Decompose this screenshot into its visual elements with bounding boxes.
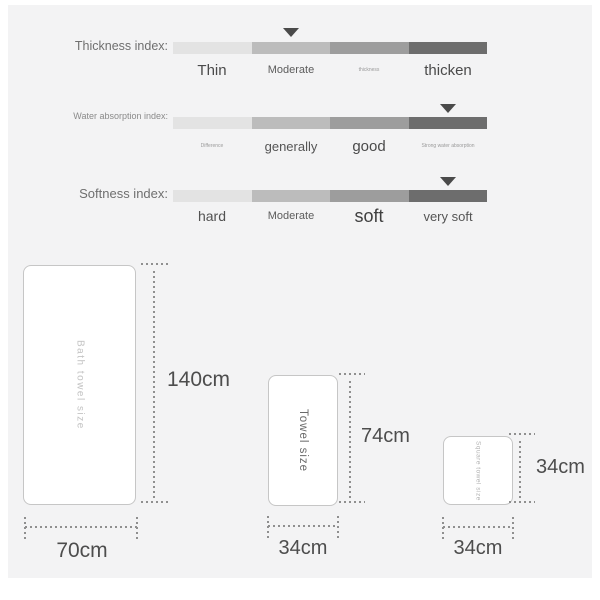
bar-segment-1 [173, 190, 252, 202]
square-width-value: 34cm [436, 537, 520, 560]
bar-segment-1 [173, 42, 252, 54]
softness-marker-icon [440, 177, 456, 186]
bar-segment-1 [173, 117, 252, 129]
bar-segment-2 [252, 190, 331, 202]
dimension-tick [509, 433, 535, 435]
towel-label: Towel size [286, 375, 320, 506]
bar-segment-4 [409, 117, 488, 129]
water-absorption-index-bar [173, 117, 487, 129]
softness-index-bar [173, 190, 487, 202]
bath-width-dimension-line [25, 526, 137, 528]
square-height-value: 34cm [536, 456, 585, 479]
bath-width-value: 70cm [40, 539, 124, 563]
bar-segment-3 [330, 190, 409, 202]
bar-segment-4 [409, 42, 488, 54]
bar-segment-2 [252, 42, 331, 54]
thickness-index-label: Thickness index: [0, 39, 168, 53]
towel-width-value: 34cm [261, 537, 345, 560]
dimension-tick [24, 517, 26, 541]
absorption-scale-strong: Strong water absorption [383, 137, 513, 155]
bar-segment-3 [330, 42, 409, 54]
thickness-index-bar [173, 42, 487, 54]
dimension-tick [141, 501, 169, 503]
bar-segment-2 [252, 117, 331, 129]
dimension-tick [339, 373, 365, 375]
towel-height-value: 74cm [361, 425, 410, 448]
thickness-marker-icon [283, 28, 299, 37]
bath-towel-label: Bath towel size [63, 265, 97, 505]
square-towel-label: Square towel size [461, 436, 495, 505]
square-height-dimension-line [519, 441, 521, 499]
dimension-tick [509, 501, 535, 503]
softness-index-label: Softness index: [0, 186, 168, 201]
dimension-tick [141, 263, 169, 265]
dimension-tick [339, 501, 365, 503]
thickness-scale-thicken: thicken [383, 61, 513, 79]
towel-height-dimension-line [349, 381, 351, 499]
towel-width-dimension-line [268, 525, 338, 527]
bath-height-value: 140cm [167, 368, 230, 392]
water-absorption-index-label: Water absorption index: [0, 111, 168, 121]
bar-segment-4 [409, 190, 488, 202]
water-absorption-marker-icon [440, 104, 456, 113]
softness-scale-very-soft: very soft [383, 207, 513, 225]
square-width-dimension-line [443, 526, 513, 528]
bath-height-dimension-line [153, 271, 155, 499]
dimension-tick [136, 517, 138, 541]
bar-segment-3 [330, 117, 409, 129]
product-infographic: Thickness index: Thin Moderate thickness… [0, 0, 600, 600]
